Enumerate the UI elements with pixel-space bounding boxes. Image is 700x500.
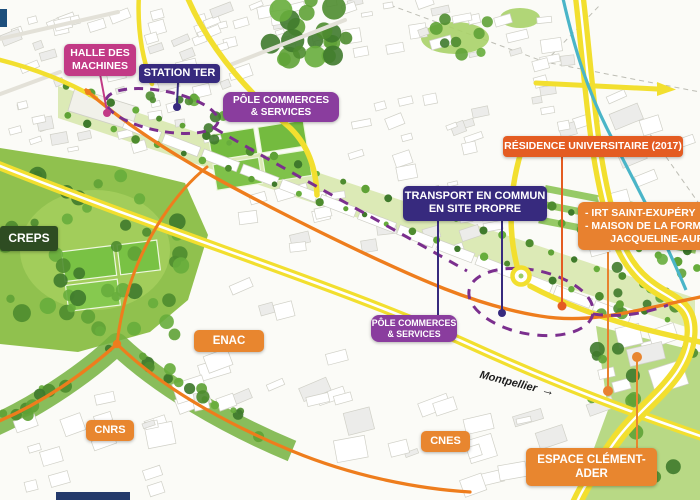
label-irt-maison-formation: - IRT SAINT-EXUPÉRY - MAISON DE LA FORMA… xyxy=(578,202,700,250)
planning-map: HALLE DES MACHINES STATION TER PÔLE COMM… xyxy=(0,0,700,500)
label-line: STATION TER xyxy=(140,67,219,80)
label-line: MACHINES xyxy=(65,60,135,73)
label-espace-clement-ader: ESPACE CLÉMENT-ADER xyxy=(526,448,657,486)
cropped-logo-fragment xyxy=(0,9,7,27)
road-arrowhead xyxy=(657,82,676,96)
route-junction-node xyxy=(113,340,121,348)
label-line: EN SITE PROPRE xyxy=(403,203,547,216)
label-line: RÉSIDENCE UNIVERSITAIRE (2017) xyxy=(503,140,683,153)
label-station-ter: STATION TER xyxy=(139,64,220,83)
label-line: & SERVICES xyxy=(371,329,457,340)
label-line: CREPS xyxy=(0,231,58,246)
label-transport-en-commun: TRANSPORT EN COMMUN EN SITE PROPRE xyxy=(403,186,547,221)
leader-station-ter xyxy=(177,83,178,104)
leader-dot-station xyxy=(173,103,181,111)
leader-dot-transport xyxy=(498,309,506,317)
route-end-node xyxy=(85,89,91,95)
label-line: CNES xyxy=(421,435,470,448)
label-line: - IRT SAINT-EXUPÉRY xyxy=(585,207,700,220)
label-line: TRANSPORT EN COMMUN xyxy=(403,190,547,203)
leader-dot-residence xyxy=(558,302,567,311)
label-line: HALLE DES xyxy=(65,47,135,60)
leader-dot-irt xyxy=(603,386,613,396)
label-residence-universitaire: RÉSIDENCE UNIVERSITAIRE (2017) xyxy=(503,136,683,157)
label-pole-commerces-nord: PÔLE COMMERCES & SERVICES xyxy=(223,92,339,122)
label-line: ENAC xyxy=(194,334,264,348)
label-cnrs: CNRS xyxy=(86,420,134,441)
roundabout-island xyxy=(519,274,524,279)
label-line: CNRS xyxy=(86,424,134,437)
label-line: JACQUELINE-AURIOL xyxy=(585,233,700,246)
label-halle-des-machines: HALLE DES MACHINES xyxy=(64,44,136,76)
label-line: & SERVICES xyxy=(224,107,338,119)
cropped-logo-fragment xyxy=(56,492,130,500)
label-cnes: CNES xyxy=(421,431,470,452)
label-line: ESPACE CLÉMENT-ADER xyxy=(526,453,657,481)
label-creps: CREPS xyxy=(0,226,58,251)
label-line: PÔLE COMMERCES xyxy=(371,318,457,329)
leader-dot-espace xyxy=(632,352,642,362)
label-enac: ENAC xyxy=(194,330,264,352)
label-pole-commerces-sud: PÔLE COMMERCES & SERVICES xyxy=(371,315,457,342)
leader-dot-halle xyxy=(103,109,111,117)
label-line: - MAISON DE LA FORMA xyxy=(585,220,700,233)
label-line: PÔLE COMMERCES xyxy=(224,95,338,107)
